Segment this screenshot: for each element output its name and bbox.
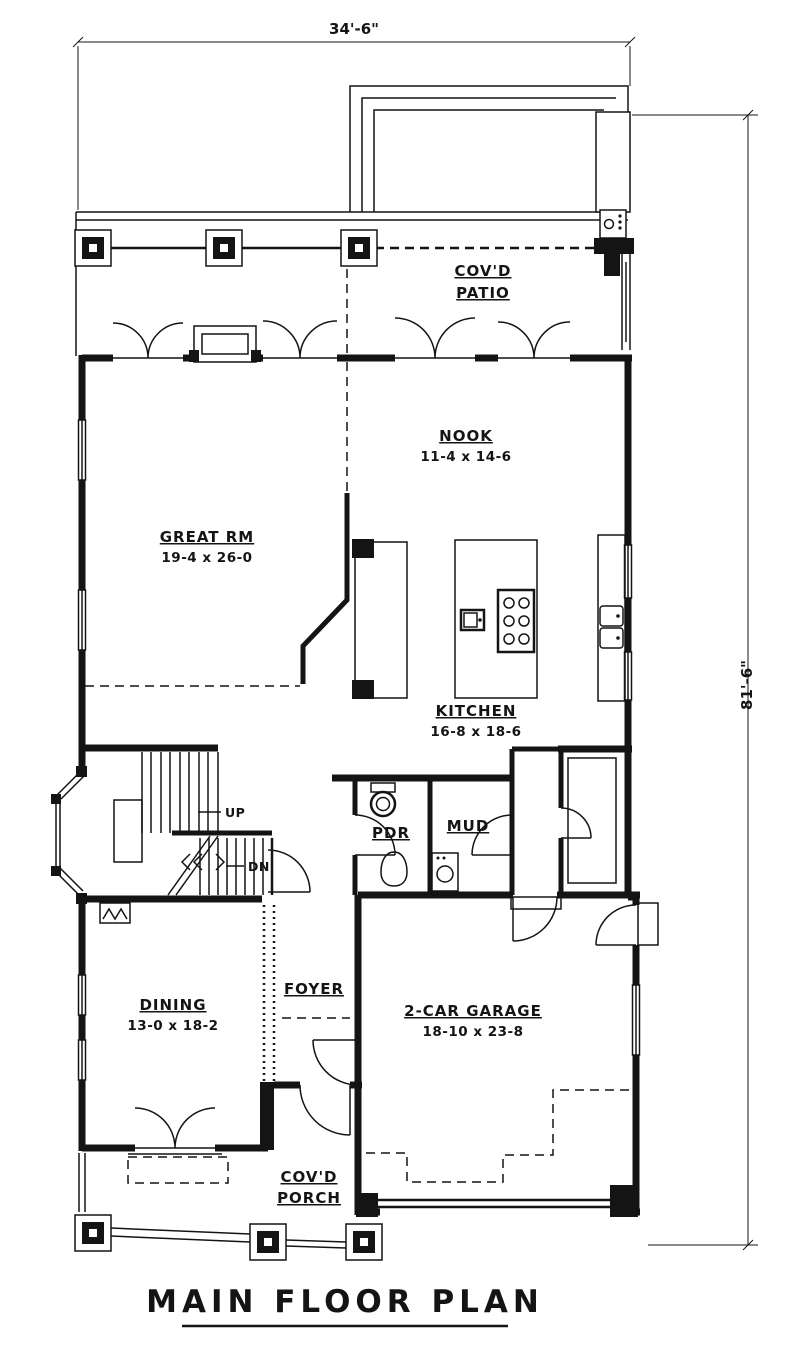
powder-name: PDR: [372, 824, 410, 842]
kitchen: KITCHEN 16-8 x 18-6: [352, 535, 625, 740]
patio-roof: [76, 86, 628, 356]
kitchen-island: [455, 540, 537, 698]
patio-post: [75, 230, 111, 266]
bay-window: [51, 766, 87, 904]
title-block: MAIN FLOOR PLAN: [146, 1284, 544, 1326]
great-room: GREAT RM 19-4 x 26-0: [85, 362, 347, 686]
toilet-icon: [371, 783, 395, 816]
stair-break-line: [168, 836, 218, 895]
pedestal-sink-icon: [381, 852, 407, 886]
garage: 2-CAR GARAGE 18-10 x 23-8: [356, 895, 658, 1217]
svg-text:COV'D: COV'D: [454, 262, 511, 280]
kitchen-counter: [598, 535, 625, 701]
hall-door-swing: [268, 850, 310, 892]
pantry-cabinet: [352, 539, 407, 699]
dining-niche: [100, 903, 130, 923]
porch-post: [250, 1224, 286, 1260]
floor-plan-drawing: 34'-6" 81'-6": [0, 0, 800, 1370]
dining-room: DINING 13-0 x 18-2: [82, 899, 268, 1154]
garage-roof-dashed-line: [366, 1090, 630, 1182]
mud-name: MUD: [447, 817, 490, 835]
garage-size: 18-10 x 23-8: [422, 1024, 523, 1040]
powder-room: PDR: [332, 778, 512, 895]
exterior-wall-left: [79, 355, 86, 1151]
porch-post: [346, 1224, 382, 1260]
plan-title: MAIN FLOOR PLAN: [146, 1284, 544, 1320]
island-sink-icon: [461, 610, 484, 630]
mud-room: MUD: [432, 815, 512, 891]
cooktop-icon: [498, 590, 534, 652]
window: [633, 985, 640, 1055]
porch-label-line1: COV'D: [280, 1168, 337, 1186]
porch-post: [75, 1215, 111, 1251]
patio-structure: [75, 230, 630, 356]
nook-name: NOOK: [439, 427, 493, 445]
great-room-name: GREAT RM: [160, 528, 254, 546]
kitchen-name: KITCHEN: [436, 702, 517, 720]
patio-post: [341, 230, 377, 266]
double-sink-icon: [600, 606, 623, 648]
foyer-name: FOYER: [284, 980, 344, 998]
floor-plan-page: 34'-6" 81'-6": [0, 0, 800, 1370]
dimension-right: 81'-6": [632, 110, 758, 1250]
foyer-closet-door-swing: [313, 1040, 358, 1085]
outdoor-grill: [594, 112, 634, 276]
fireplace: [189, 326, 261, 362]
washer-icon: [432, 853, 458, 891]
closet-door-swing: [561, 808, 591, 838]
porch: COV'D PORCH: [75, 1153, 382, 1260]
garage-side-door: [596, 903, 658, 945]
dimension-top: 34'-6": [73, 20, 635, 210]
stairs: UP DN: [82, 748, 310, 895]
window: [79, 1040, 86, 1080]
porch-steps-dashed: [128, 1157, 228, 1183]
stairs-up-label: UP: [225, 805, 245, 820]
porch-label-line2: PORCH: [277, 1189, 341, 1207]
width-dimension-label: 34'-6": [329, 20, 379, 38]
nook-size: 11-4 x 14-6: [420, 449, 511, 465]
foyer: FOYER: [260, 905, 362, 1150]
garage-name: 2-CAR GARAGE: [404, 1002, 542, 1020]
window: [79, 975, 86, 1015]
kitchen-size: 16-8 x 18-6: [430, 724, 521, 740]
stairs-dn-label: DN: [248, 859, 270, 874]
stair-landing: [114, 800, 142, 862]
patio-label: COV'D PATIO: [454, 262, 511, 302]
dining-size: 13-0 x 18-2: [127, 1018, 218, 1034]
window: [79, 420, 86, 480]
front-door: [274, 1085, 362, 1135]
hall-closet: [512, 749, 632, 895]
garage-door: [356, 1185, 638, 1217]
garage-entry-door: [511, 897, 561, 941]
svg-text:PATIO: PATIO: [456, 284, 510, 302]
great-room-size: 19-4 x 26-0: [161, 550, 252, 566]
window: [79, 590, 86, 650]
dining-name: DINING: [139, 996, 206, 1014]
french-doors-nook: [395, 318, 570, 358]
height-dimension-label: 81'-6": [738, 660, 756, 710]
stair-treads-up: [142, 752, 218, 833]
nook: NOOK 11-4 x 14-6: [420, 427, 511, 465]
patio-post: [206, 230, 242, 266]
french-doors-dining: [128, 1108, 222, 1154]
